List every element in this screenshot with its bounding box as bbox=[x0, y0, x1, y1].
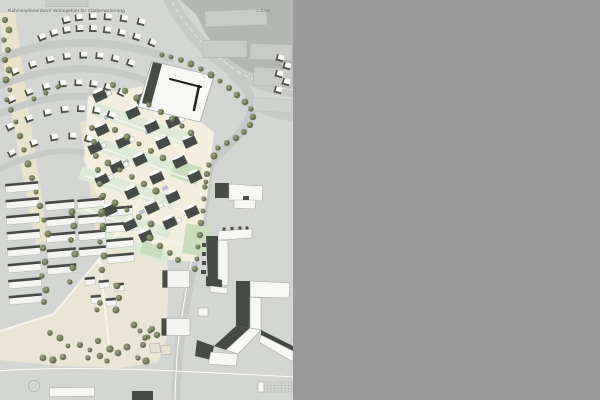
site-plan-image: Rahmenplanentwurf Wohngebiet für Stadter… bbox=[0, 0, 600, 400]
plan-title: Rahmenplanentwurf Wohngebiet für Stadter… bbox=[8, 8, 125, 13]
canvas-background bbox=[293, 0, 600, 400]
plan-scale-label: 1:1000 bbox=[256, 8, 270, 13]
roundabout bbox=[29, 381, 40, 392]
application-window: Rahmenplanentwurf Wohngebiet für Stadter… bbox=[0, 0, 600, 400]
site-plan-layers bbox=[0, 0, 300, 400]
